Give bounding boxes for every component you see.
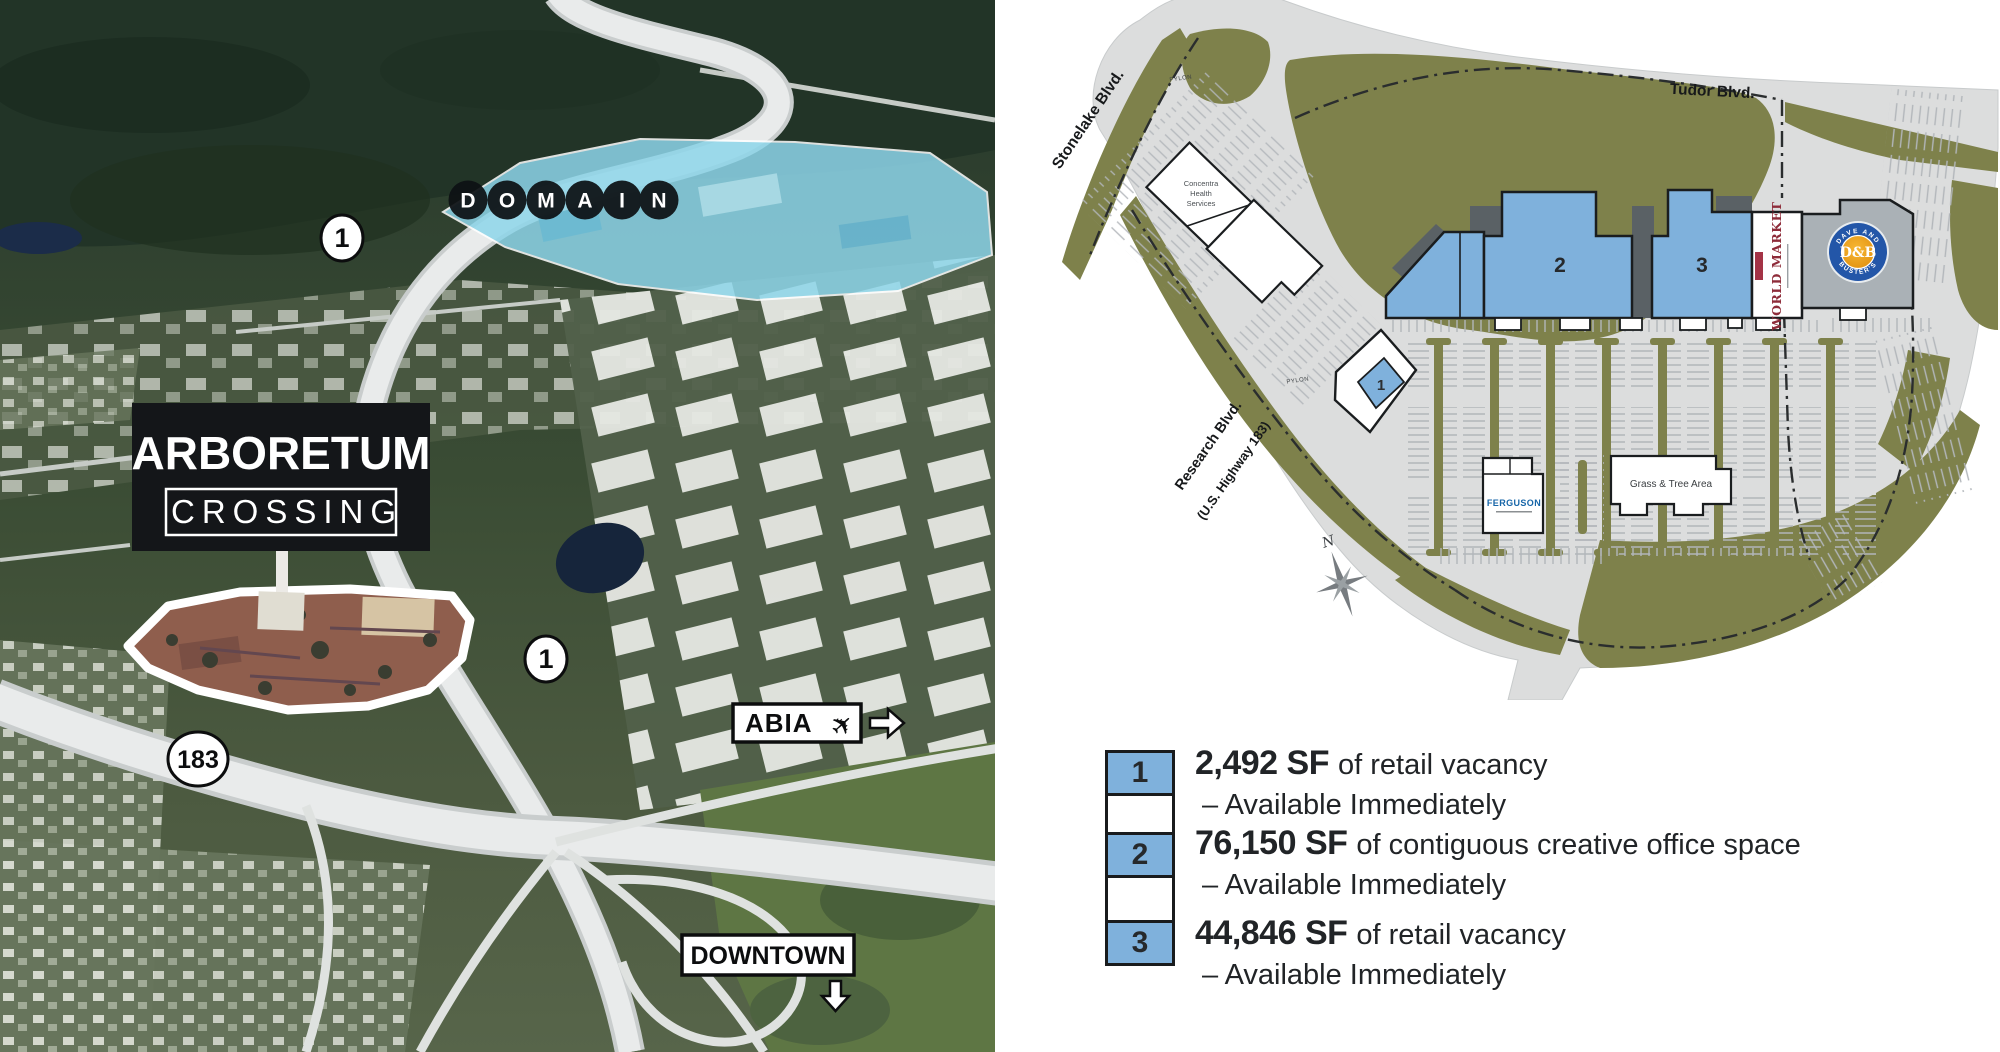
flyer-page: D O M A I N ARBORETUM CROSSING 1 1 — [0, 0, 2000, 1052]
legend-num-2: 2 — [1132, 838, 1149, 872]
legend-num-3: 3 — [1132, 926, 1149, 960]
domain-letter: D — [460, 190, 475, 213]
sf-desc: of retail vacancy — [1356, 919, 1566, 951]
domain-letter: I — [619, 190, 625, 213]
sf-value: 2,492 SF — [1195, 744, 1329, 782]
legend-item-3: 44,846 SFof retail vacancy – Available I… — [1195, 914, 1566, 992]
legend-num-1: 1 — [1132, 756, 1149, 790]
availability-legend: 1 2 3 2,492 SFof retail vacancy – Availa… — [1103, 750, 1963, 1050]
legend-item-1: 2,492 SFof retail vacancy – Available Im… — [1195, 744, 1548, 822]
legend-availability: – Available Immediately — [1202, 869, 1801, 902]
sf-value: 44,846 SF — [1195, 914, 1347, 952]
grass-tree-label: Grass & Tree Area — [1630, 479, 1713, 490]
street-label-research-2: (U.S. Highway 183) — [1194, 418, 1273, 522]
legend-line-sf: 2,492 SFof retail vacancy — [1195, 744, 1548, 783]
legend-box-1: 1 — [1105, 750, 1175, 796]
svg-text:Health: Health — [1190, 189, 1212, 198]
legend-item-2: 76,150 SFof contiguous creative office s… — [1195, 824, 1801, 902]
legend-box-2: 2 — [1105, 832, 1175, 878]
abia-label: ABIA — [745, 708, 813, 738]
sf-desc: of retail vacancy — [1338, 749, 1548, 781]
svg-text:WORLD MARKET: WORLD MARKET — [1769, 201, 1784, 331]
dnb-center-text: D&B — [1840, 245, 1877, 261]
domain-letter: O — [499, 190, 515, 213]
svg-text:Services: Services — [1187, 199, 1216, 208]
svg-text:1: 1 — [334, 223, 349, 253]
concentra-label: Concentra — [1184, 179, 1219, 188]
sf-desc: of contiguous creative office space — [1356, 829, 1800, 861]
site-plan: Concentra Health Services 2 3 WORLD MARK… — [1040, 0, 2000, 700]
shield-183: 183 — [168, 732, 228, 786]
legend-box-spacer — [1105, 793, 1175, 835]
building-2-label: 2 — [1554, 254, 1566, 277]
legend-availability: – Available Immediately — [1202, 959, 1566, 992]
svg-text:1: 1 — [538, 644, 553, 674]
legend-availability: – Available Immediately — [1202, 789, 1548, 822]
sf-value: 76,150 SF — [1195, 824, 1347, 862]
arboretum-crossing-sign: ARBORETUM CROSSING — [132, 403, 431, 551]
aerial-photo: D O M A I N ARBORETUM CROSSING 1 1 — [0, 0, 995, 1052]
shield-loop1-south: 1 — [525, 636, 567, 682]
legend-box-spacer — [1105, 875, 1175, 923]
building-1-label: 1 — [1377, 377, 1385, 394]
building-3-label: 3 — [1696, 254, 1708, 277]
legend-line-sf: 76,150 SFof contiguous creative office s… — [1195, 824, 1801, 863]
shield-loop1-north: 1 — [321, 215, 363, 261]
svg-text:183: 183 — [177, 746, 219, 774]
sign-subtitle: CROSSING — [171, 493, 403, 530]
sign-title: ARBORETUM — [132, 427, 431, 479]
domain-letter: N — [651, 190, 666, 213]
legend-box-3: 3 — [1105, 920, 1175, 966]
dave-busters-logo: DAVE AND BUSTER'S D&B — [1827, 221, 1889, 283]
residential-south — [0, 840, 430, 1052]
ferguson-logo-text: FERGUSON — [1487, 498, 1541, 508]
parking-center-lot — [1408, 338, 1876, 556]
domain-letter: A — [577, 190, 592, 213]
legend-line-sf: 44,846 SFof retail vacancy — [1195, 914, 1566, 953]
downtown-label: DOWNTOWN — [690, 942, 845, 970]
domain-letter: M — [537, 190, 555, 213]
